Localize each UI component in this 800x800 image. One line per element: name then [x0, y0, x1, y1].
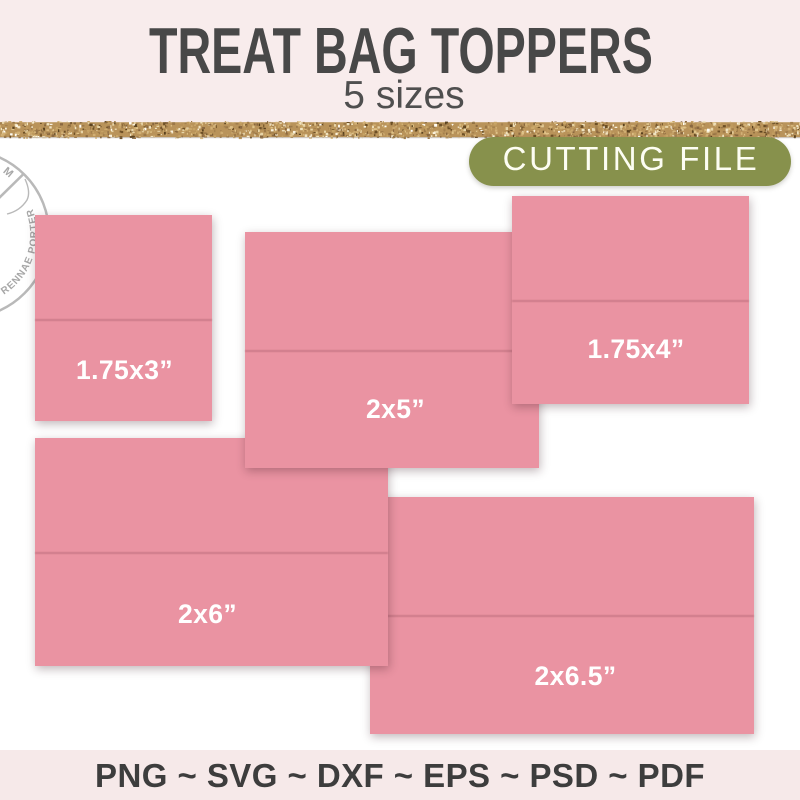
svg-text:M: M — [1, 165, 16, 180]
